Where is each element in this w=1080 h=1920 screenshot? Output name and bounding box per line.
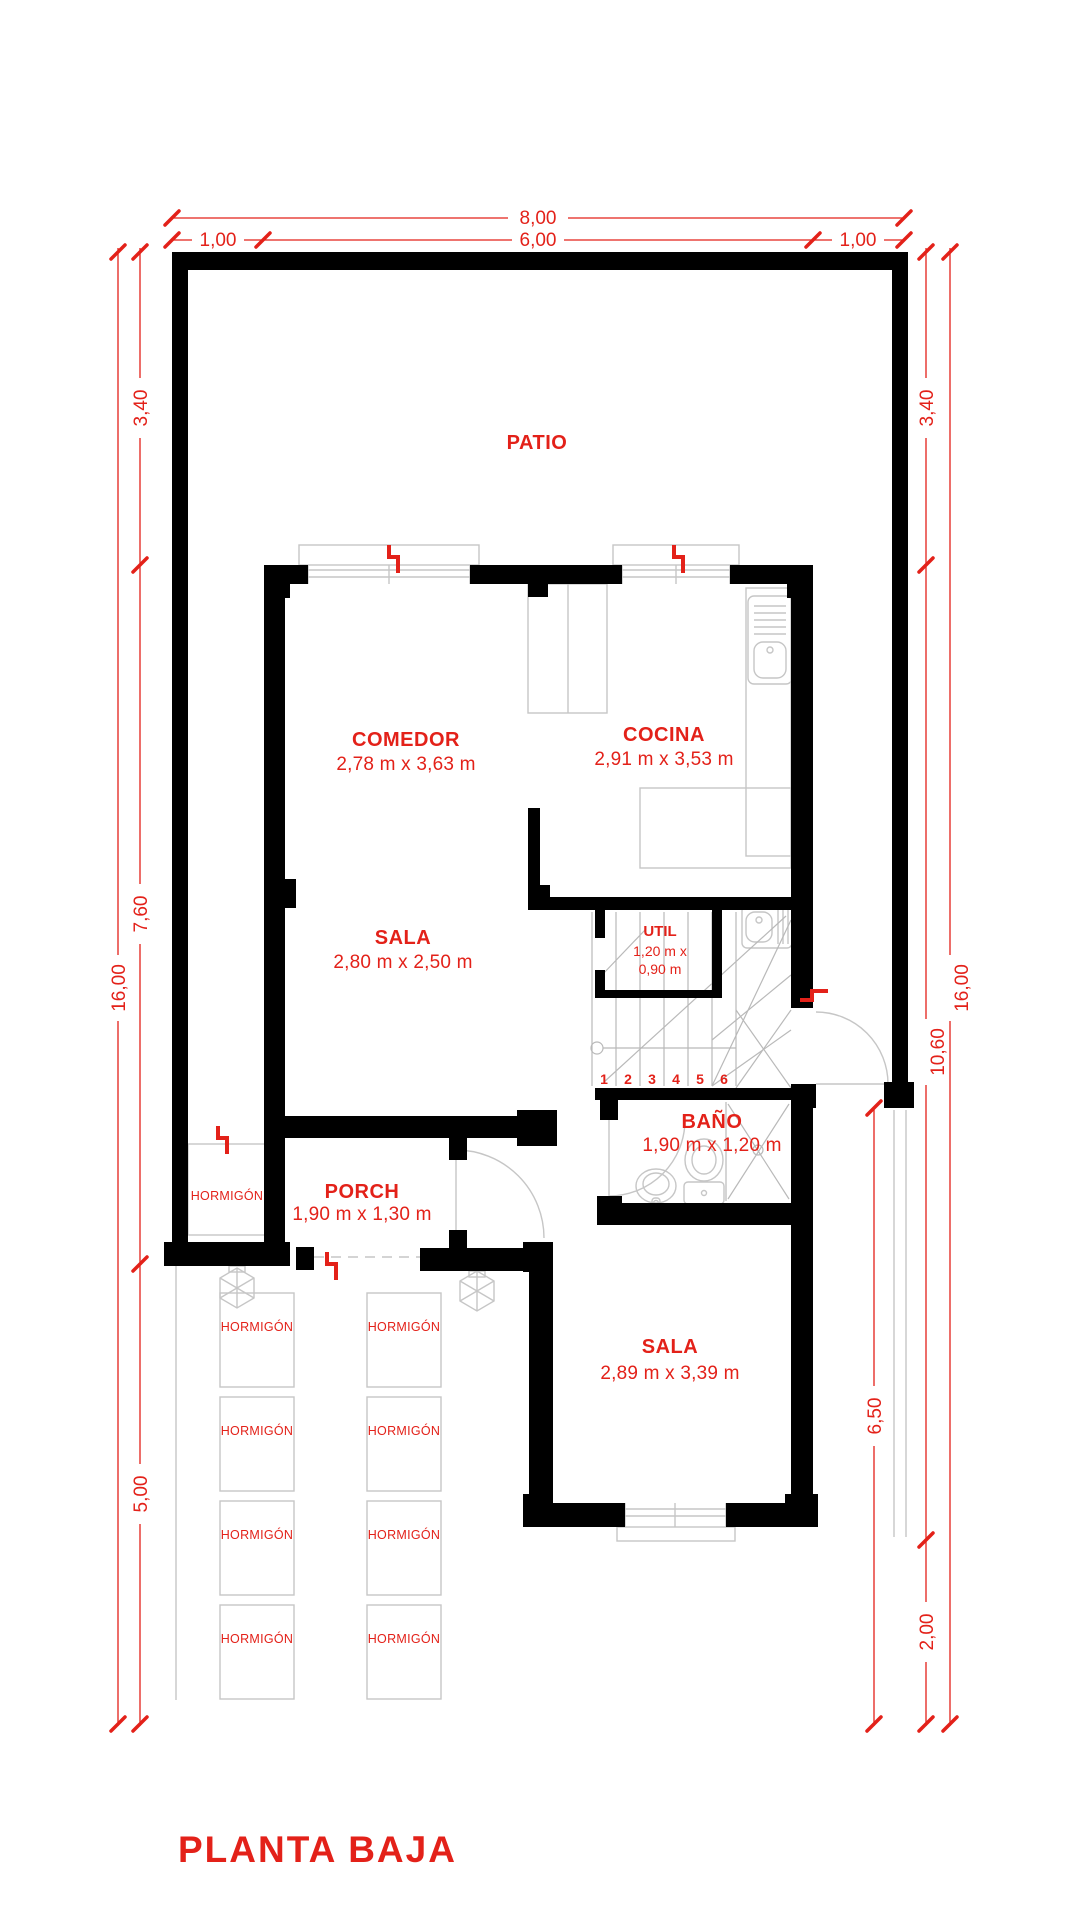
material-label-hormigon: HORMIGÓN [221, 1319, 294, 1334]
dim-house-depth-left: 7,60 [129, 884, 152, 944]
room-label-cocina: COCINA [623, 724, 705, 746]
kitchen-sink-icon [748, 596, 792, 684]
ceiling-lamp-icon [460, 1271, 494, 1311]
room-size-sala-lower: 2,89 m x 3,39 m [600, 1363, 739, 1384]
stair-step: 1 [600, 1071, 608, 1087]
dim-label: 1,00 [200, 230, 237, 251]
entry-door-arc [816, 1012, 888, 1084]
material-label-hormigon: HORMIGÓN [368, 1423, 441, 1438]
room-size-sala-upper: 2,80 m x 2,50 m [333, 952, 472, 973]
dim-total-width: 8,00 [508, 206, 568, 229]
material-label-hormigon: HORMIGÓN [368, 1631, 441, 1646]
floor-plan-page: 8,00 1,00 6,00 1,00 16,00 3,40 7,60 5,00… [0, 0, 1080, 1920]
porch-door-arc [456, 1150, 544, 1238]
room-label-bano: BAÑO [682, 1110, 743, 1133]
dim-right-bottom: 2,00 [915, 1602, 938, 1662]
dim-label: 5,00 [131, 1476, 152, 1513]
dim-label: 2,00 [917, 1614, 938, 1651]
dim-label: 3,40 [131, 390, 152, 427]
bathroom-door-arc [609, 1120, 685, 1196]
house-right-wall [785, 584, 818, 1527]
material-label-hormigon: HORMIGÓN [221, 1423, 294, 1438]
dim-label: 16,00 [952, 964, 973, 1012]
dim-label: 7,60 [131, 896, 152, 933]
room-size-comedor: 2,78 m x 3,63 m [336, 754, 475, 775]
laundry-sink-icon [742, 906, 792, 948]
dim-patio-depth-right: 3,40 [915, 378, 938, 438]
dim-left-margin: 1,00 [192, 228, 244, 251]
stair-step: 2 [624, 1071, 632, 1087]
room-size-util-1: 1,20 m x [633, 943, 687, 959]
material-label-hormigon: HORMIGÓN [221, 1631, 294, 1646]
page-title: PLANTA BAJA [178, 1829, 457, 1870]
pantry-cupboard [528, 584, 607, 713]
stair-step: 4 [672, 1071, 680, 1087]
room-size-util-2: 0,90 m [639, 961, 682, 977]
floor-plan-drawing: 8,00 1,00 6,00 1,00 16,00 3,40 7,60 5,00… [0, 0, 1080, 1920]
room-label-util: UTIL [643, 923, 676, 940]
material-label-hormigon: HORMIGÓN [191, 1188, 264, 1203]
room-size-bano: 1,90 m x 1,20 m [642, 1135, 781, 1156]
dim-patio-depth-left: 3,40 [129, 378, 152, 438]
room-size-porch: 1,90 m x 1,30 m [292, 1204, 431, 1225]
dim-label: 8,00 [520, 208, 557, 229]
dim-right-middle: 10,60 [915, 1019, 949, 1085]
stair-step: 3 [648, 1071, 656, 1087]
ceiling-lamp-icon [220, 1266, 254, 1308]
dim-label: 6,50 [865, 1398, 886, 1435]
dim-right-yard: 6,50 [863, 1386, 886, 1446]
room-label-patio: PATIO [507, 432, 568, 454]
dim-label: 1,00 [840, 230, 877, 251]
dim-label: 3,40 [917, 390, 938, 427]
light-switch-icon [218, 1126, 227, 1154]
room-label-porch: PORCH [325, 1181, 400, 1203]
material-label-hormigon: HORMIGÓN [368, 1527, 441, 1542]
room-label-sala-lower: SALA [642, 1336, 698, 1358]
stair-step: 6 [720, 1071, 728, 1087]
bottom-sala-walls [523, 1242, 791, 1527]
dim-right-margin: 1,00 [832, 228, 884, 251]
dim-house-width: 6,00 [512, 228, 564, 251]
light-switch-icon [327, 1252, 336, 1280]
dim-label: 10,60 [928, 1028, 949, 1076]
dim-label: 16,00 [109, 964, 130, 1012]
dim-total-height-left: 16,00 [107, 955, 130, 1021]
stair-step: 5 [696, 1071, 704, 1087]
room-label-sala-upper: SALA [375, 927, 431, 949]
house-left-wall [264, 565, 296, 1253]
dim-front-yard-left: 5,00 [129, 1464, 152, 1524]
light-switch-icon [389, 545, 398, 573]
dim-total-height-right: 16,00 [939, 955, 973, 1021]
dim-label: 6,00 [520, 230, 557, 251]
material-label-hormigon: HORMIGÓN [221, 1527, 294, 1542]
room-size-cocina: 2,91 m x 3,53 m [594, 749, 733, 770]
material-label-hormigon: HORMIGÓN [368, 1319, 441, 1334]
room-label-comedor: COMEDOR [352, 729, 460, 751]
window-bottom-sala [617, 1503, 735, 1541]
